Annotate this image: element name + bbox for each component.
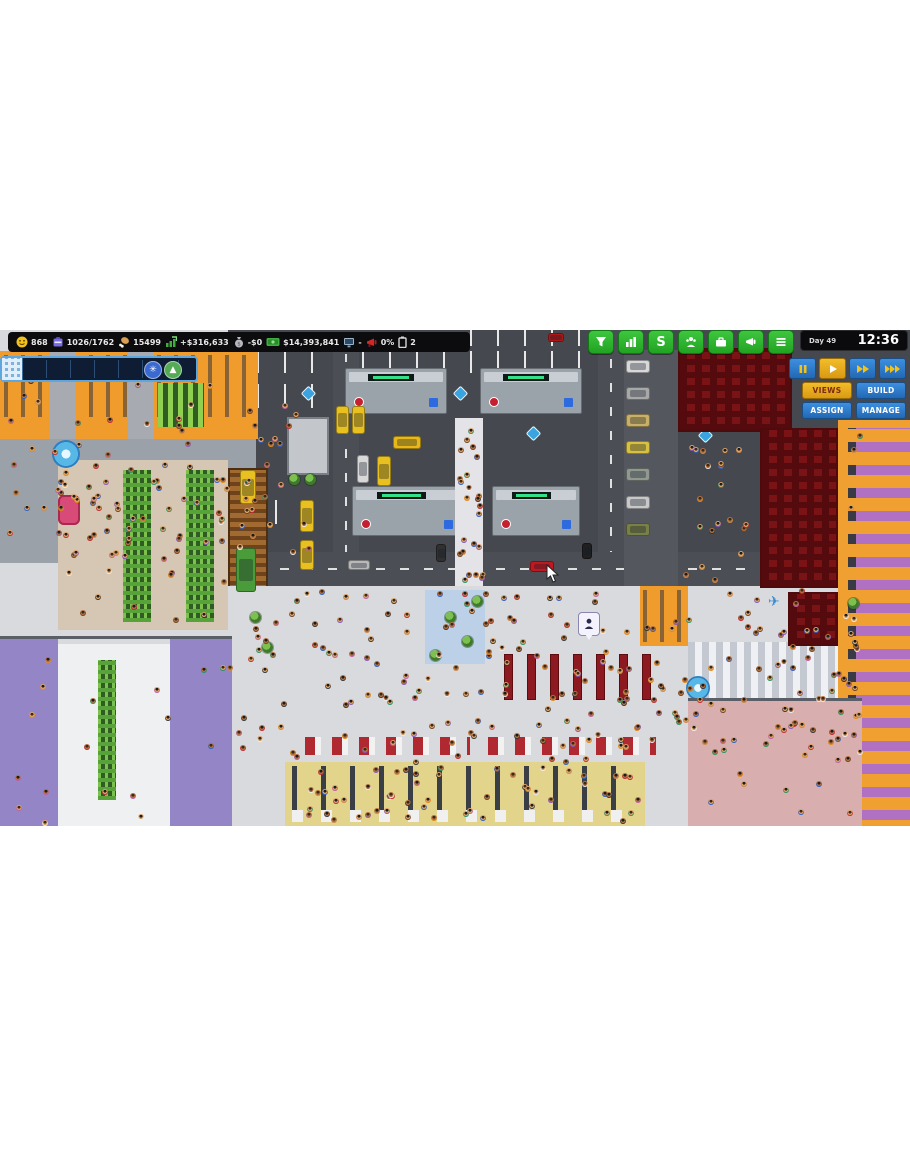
person-dot bbox=[463, 811, 469, 817]
fast-forward-button[interactable] bbox=[849, 358, 876, 379]
person-dot bbox=[624, 629, 630, 635]
person-dot bbox=[693, 711, 699, 717]
megaphone-icon bbox=[745, 336, 757, 348]
person-dot bbox=[130, 793, 136, 799]
person-dot bbox=[763, 741, 769, 747]
person-dot bbox=[842, 731, 848, 737]
finance-button[interactable]: S bbox=[648, 330, 674, 354]
person-dot bbox=[781, 659, 787, 665]
person-dot bbox=[341, 797, 347, 803]
person-dot bbox=[745, 610, 751, 616]
person-dot bbox=[444, 691, 450, 697]
person-dot bbox=[227, 665, 233, 671]
person-dot bbox=[721, 747, 727, 753]
person-dot bbox=[669, 626, 675, 632]
person-dot bbox=[289, 611, 295, 617]
airplane-decal: ✈ bbox=[768, 594, 784, 610]
person-dot bbox=[326, 650, 332, 656]
person-dot bbox=[388, 792, 394, 798]
person-dot bbox=[700, 448, 706, 454]
person-dot bbox=[368, 636, 374, 642]
person-dot bbox=[581, 773, 587, 779]
person-dot bbox=[720, 707, 726, 713]
person-dot bbox=[708, 799, 714, 805]
person-dot bbox=[835, 736, 841, 742]
person-dot bbox=[413, 759, 419, 765]
flight-chip-green[interactable]: ▲ bbox=[164, 361, 182, 379]
person-dot bbox=[534, 653, 540, 659]
views-button[interactable]: VIEWS bbox=[802, 382, 852, 399]
person-dot bbox=[582, 678, 588, 684]
play-icon bbox=[828, 364, 838, 374]
person-dot bbox=[364, 655, 370, 661]
person-dot bbox=[324, 811, 330, 817]
person-dot bbox=[635, 797, 641, 803]
person-dot bbox=[252, 498, 258, 504]
person-dot bbox=[332, 652, 338, 658]
person-dot bbox=[239, 523, 245, 529]
person-dot bbox=[799, 588, 805, 594]
person-dot bbox=[464, 495, 470, 501]
room-shelf bbox=[98, 660, 116, 800]
person-dot bbox=[365, 784, 371, 790]
schedule-segment bbox=[70, 360, 71, 378]
stat-income[interactable]: +$316,633 bbox=[165, 336, 229, 348]
person-dot bbox=[809, 646, 815, 652]
person-dot bbox=[445, 720, 451, 726]
person-dot bbox=[301, 521, 307, 527]
person-dot bbox=[542, 664, 548, 670]
person-dot bbox=[593, 591, 599, 597]
stat-value: - bbox=[358, 338, 361, 347]
person-dot bbox=[582, 781, 588, 787]
wall bbox=[688, 698, 862, 701]
person-dot bbox=[286, 423, 292, 429]
person-dot bbox=[479, 575, 485, 581]
person-dot bbox=[620, 818, 626, 824]
checkin-desks bbox=[305, 737, 470, 755]
person-dot bbox=[75, 420, 81, 426]
person-dot bbox=[613, 773, 619, 779]
person-dot bbox=[720, 738, 726, 744]
person-dot bbox=[745, 624, 751, 630]
person-dot bbox=[768, 733, 774, 739]
person-dot bbox=[160, 526, 166, 532]
person-dot bbox=[575, 671, 581, 677]
stat-passengers[interactable]: 868 bbox=[16, 336, 48, 348]
person-dot bbox=[403, 673, 409, 679]
person-dot bbox=[165, 715, 171, 721]
security-lanes bbox=[292, 766, 640, 810]
person-dot bbox=[306, 546, 312, 552]
person-dot bbox=[702, 739, 708, 745]
person-dot bbox=[458, 447, 464, 453]
person-dot bbox=[93, 463, 99, 469]
person-dot bbox=[385, 611, 391, 617]
income-arrow-icon bbox=[165, 336, 177, 348]
person-dot bbox=[237, 544, 243, 550]
person-dot bbox=[162, 462, 168, 468]
person-dot bbox=[255, 634, 261, 640]
stat-food[interactable]: 15499 bbox=[118, 336, 161, 348]
person-dot bbox=[736, 447, 742, 453]
person-dot bbox=[514, 733, 520, 739]
stat-expenses[interactable]: $ -$0 bbox=[233, 336, 262, 348]
person-dot bbox=[29, 712, 35, 718]
person-dot bbox=[691, 725, 697, 731]
person-dot bbox=[179, 428, 185, 434]
person-dot bbox=[753, 630, 759, 636]
person-dot bbox=[651, 697, 657, 703]
person-dot bbox=[468, 428, 474, 434]
tree bbox=[250, 612, 261, 623]
person-dot bbox=[87, 535, 93, 541]
person-dot bbox=[304, 591, 310, 597]
person-dot bbox=[363, 593, 369, 599]
road-markings bbox=[610, 332, 612, 584]
person-dot bbox=[687, 686, 693, 692]
vehicle bbox=[626, 414, 650, 427]
person-dot bbox=[699, 564, 705, 570]
person-dot bbox=[318, 769, 324, 775]
stat-monitor[interactable]: - bbox=[343, 337, 361, 348]
flight-chip-blue[interactable]: ✳ bbox=[144, 361, 162, 379]
schedule-segment bbox=[94, 360, 95, 378]
person-dot bbox=[176, 416, 182, 422]
person-dot bbox=[851, 616, 857, 622]
person-dot bbox=[312, 621, 318, 627]
stat-value: 868 bbox=[31, 338, 48, 347]
person-dot bbox=[404, 629, 410, 635]
stat-value: +$316,633 bbox=[180, 338, 229, 347]
person-dot bbox=[166, 506, 172, 512]
person-dot bbox=[42, 820, 48, 826]
person-dot bbox=[294, 754, 300, 760]
person-dot bbox=[185, 441, 191, 447]
game-viewport[interactable]: ✈ bbox=[0, 330, 910, 826]
person-dot bbox=[219, 516, 225, 522]
person-dot bbox=[449, 740, 455, 746]
person-dot bbox=[588, 711, 594, 717]
person-dot bbox=[474, 454, 480, 460]
person-dot bbox=[841, 676, 847, 682]
person-dot bbox=[383, 695, 389, 701]
fastest-icon bbox=[884, 364, 902, 374]
person-dot bbox=[635, 724, 641, 730]
person-dot bbox=[333, 798, 339, 804]
person-dot bbox=[176, 423, 182, 429]
person-dot bbox=[486, 649, 492, 655]
stat-bags[interactable]: 1026/1762 bbox=[52, 336, 114, 348]
top-stat-bar: 868 1026/1762 15499 +$316,633 $ -$0 $14,… bbox=[8, 332, 470, 352]
person-dot bbox=[572, 691, 578, 697]
person-dot bbox=[843, 613, 849, 619]
person-dot bbox=[264, 462, 270, 468]
person-dot bbox=[617, 668, 623, 674]
person-dot bbox=[476, 511, 482, 517]
person-dot bbox=[483, 591, 489, 597]
fastest-button[interactable] bbox=[879, 358, 906, 379]
manage-button[interactable]: MANAGE bbox=[856, 402, 906, 419]
assign-button[interactable]: ASSIGN bbox=[802, 402, 852, 419]
person-dot bbox=[343, 702, 349, 708]
person-dot bbox=[458, 479, 464, 485]
stat-battery[interactable]: 2 bbox=[398, 336, 416, 348]
person-dot bbox=[278, 482, 284, 488]
person-dot bbox=[678, 690, 684, 696]
person-dot bbox=[697, 524, 703, 530]
briefcase-icon bbox=[715, 336, 727, 348]
person-dot bbox=[548, 612, 554, 618]
person-dot bbox=[109, 552, 115, 558]
menu-button[interactable] bbox=[768, 330, 794, 354]
day-counter: Day 49 bbox=[809, 337, 836, 345]
person-dot bbox=[461, 537, 467, 543]
person-dot bbox=[437, 591, 443, 597]
person-dot bbox=[600, 659, 606, 665]
person-dot bbox=[689, 445, 695, 451]
person-dot bbox=[219, 538, 225, 544]
person-dot bbox=[278, 724, 284, 730]
person-dot bbox=[21, 393, 27, 399]
person-dot bbox=[829, 688, 835, 694]
expenses-moneybag-icon: $ bbox=[233, 336, 245, 348]
person-dot bbox=[514, 594, 520, 600]
person-dot bbox=[835, 757, 841, 763]
person-dot bbox=[306, 812, 312, 818]
person-dot bbox=[575, 726, 581, 732]
person-dot bbox=[715, 521, 721, 527]
gate-belts bbox=[856, 428, 910, 820]
person-dot bbox=[58, 505, 64, 511]
vehicle bbox=[236, 548, 256, 592]
person-dot bbox=[151, 479, 157, 485]
person-dot bbox=[400, 730, 406, 736]
person-dot bbox=[208, 743, 214, 749]
seating-rows-gray bbox=[688, 642, 838, 700]
person-dot bbox=[384, 808, 390, 814]
stat-value: $14,393,841 bbox=[283, 338, 339, 347]
reports-button[interactable] bbox=[618, 330, 644, 354]
person-dot bbox=[790, 665, 796, 671]
person-dot bbox=[754, 597, 760, 603]
person-dot bbox=[106, 568, 112, 574]
person-dot bbox=[483, 621, 489, 627]
speed-controls bbox=[789, 358, 906, 379]
person-dot bbox=[808, 744, 814, 750]
person-dot bbox=[697, 496, 703, 502]
shuttle-shelter bbox=[492, 486, 580, 536]
person-dot bbox=[626, 666, 632, 672]
person-dot bbox=[248, 656, 254, 662]
room-pink bbox=[688, 700, 862, 826]
person-dot bbox=[90, 698, 96, 704]
person-dot bbox=[66, 570, 72, 576]
person-dot bbox=[244, 508, 250, 514]
person-dot bbox=[510, 772, 516, 778]
person-dot bbox=[708, 701, 714, 707]
staff-people-icon bbox=[685, 336, 697, 348]
person-dot bbox=[331, 817, 337, 823]
red-seating-area bbox=[678, 348, 792, 432]
person-dot bbox=[775, 662, 781, 668]
person-dot bbox=[726, 656, 732, 662]
person-dot bbox=[624, 696, 630, 702]
person-dot bbox=[592, 599, 598, 605]
person-dot bbox=[529, 803, 535, 809]
person-dot bbox=[250, 533, 256, 539]
play-button[interactable] bbox=[819, 358, 846, 379]
vehicle bbox=[626, 523, 650, 536]
person-dot bbox=[781, 629, 787, 635]
person-dot bbox=[566, 768, 572, 774]
person-dot bbox=[436, 652, 442, 658]
person-dot bbox=[201, 612, 207, 618]
person-dot bbox=[168, 572, 174, 578]
red-seating-area bbox=[760, 428, 838, 588]
person-dot bbox=[131, 604, 137, 610]
person-dot bbox=[71, 494, 77, 500]
person-dot bbox=[654, 660, 660, 666]
person-dot bbox=[270, 652, 276, 658]
vehicle bbox=[377, 456, 391, 486]
person-dot bbox=[556, 595, 562, 601]
svg-text:$: $ bbox=[237, 342, 241, 348]
finance-s-icon: S bbox=[656, 335, 665, 350]
vehicle bbox=[548, 333, 564, 342]
person-dot bbox=[128, 467, 134, 473]
marketing-button[interactable] bbox=[738, 330, 764, 354]
person-dot bbox=[550, 695, 556, 701]
person-dot bbox=[564, 622, 570, 628]
screenshot-canvas: { "hud": { "stats": [ {"icon": "passenge… bbox=[0, 0, 910, 1155]
person-dot bbox=[436, 772, 442, 778]
pause-button[interactable] bbox=[789, 358, 816, 379]
person-dot bbox=[829, 729, 835, 735]
stat-value: 15499 bbox=[133, 338, 161, 347]
vehicle bbox=[357, 455, 369, 483]
person-dot bbox=[516, 646, 522, 652]
time-display: 12:36 bbox=[858, 333, 899, 348]
filter-button[interactable] bbox=[588, 330, 614, 354]
person-dot bbox=[797, 690, 803, 696]
person-dot bbox=[504, 660, 510, 666]
person-dot bbox=[783, 787, 789, 793]
person-dot bbox=[656, 710, 662, 716]
person-dot bbox=[618, 743, 624, 749]
main-menu-buttons: VIEWS BUILD ASSIGN MANAGE bbox=[802, 382, 906, 419]
person-dot bbox=[107, 417, 113, 423]
person-dot bbox=[820, 696, 826, 702]
person-dot bbox=[258, 437, 264, 443]
person-dot bbox=[259, 725, 265, 731]
vehicle bbox=[352, 406, 365, 434]
stat-marketing[interactable]: 0% bbox=[366, 337, 395, 348]
person-dot bbox=[617, 697, 623, 703]
person-dot bbox=[224, 486, 230, 492]
person-dot bbox=[548, 797, 554, 803]
person-dot bbox=[798, 809, 804, 815]
person-dot bbox=[595, 732, 601, 738]
person-dot bbox=[712, 577, 718, 583]
person-dot bbox=[425, 676, 431, 682]
person-dot bbox=[414, 780, 420, 786]
person-dot bbox=[252, 423, 258, 429]
person-dot bbox=[308, 787, 314, 793]
person-dot bbox=[293, 412, 299, 418]
person-dot bbox=[561, 635, 567, 641]
person-dot bbox=[520, 639, 526, 645]
person-dot bbox=[181, 496, 187, 502]
person-dot bbox=[813, 627, 819, 633]
person-dot bbox=[390, 740, 396, 746]
person-dot bbox=[35, 399, 41, 405]
person-dot bbox=[95, 594, 101, 600]
person-dot bbox=[560, 743, 566, 749]
vehicle bbox=[300, 540, 314, 570]
cash-bill-icon bbox=[266, 337, 280, 347]
tree bbox=[848, 598, 859, 609]
schedule-grid-icon[interactable] bbox=[2, 358, 23, 380]
person-dot bbox=[547, 595, 553, 601]
person-dot bbox=[464, 472, 470, 478]
battery-icon bbox=[398, 336, 407, 348]
red-bench bbox=[527, 654, 536, 700]
produce-shelf bbox=[123, 470, 151, 622]
person-dot bbox=[337, 617, 343, 623]
person-dot bbox=[490, 638, 496, 644]
person-dot bbox=[463, 691, 469, 697]
stat-cash[interactable]: $14,393,841 bbox=[266, 337, 339, 347]
person-dot bbox=[477, 503, 483, 509]
person-dot bbox=[851, 732, 857, 738]
vehicle bbox=[393, 436, 421, 449]
person-dot bbox=[322, 789, 328, 795]
person-dot bbox=[793, 601, 799, 607]
hamburger-menu-icon bbox=[775, 336, 787, 348]
business-button[interactable] bbox=[708, 330, 734, 354]
person-dot bbox=[540, 765, 546, 771]
person-dot bbox=[246, 478, 252, 484]
build-button[interactable]: BUILD bbox=[856, 382, 906, 399]
person-dot bbox=[478, 689, 484, 695]
person-dot bbox=[718, 461, 724, 467]
stat-value: -$0 bbox=[248, 338, 262, 347]
person-dot bbox=[243, 496, 249, 502]
shop-shelves bbox=[643, 590, 685, 642]
vehicle bbox=[336, 406, 349, 434]
person-dot bbox=[277, 441, 283, 447]
person-dot bbox=[705, 463, 711, 469]
person-dot bbox=[570, 741, 576, 747]
person-dot bbox=[194, 500, 200, 506]
person-dot bbox=[421, 804, 427, 810]
person-dot bbox=[374, 808, 380, 814]
staff-button[interactable] bbox=[678, 330, 704, 354]
person-dot bbox=[816, 781, 822, 787]
schedule-segment bbox=[142, 360, 143, 378]
person-dot bbox=[604, 810, 610, 816]
person-dot bbox=[96, 505, 102, 511]
person-dot bbox=[106, 514, 112, 520]
person-dot bbox=[649, 737, 655, 743]
person-dot bbox=[473, 572, 479, 578]
person-dot bbox=[13, 490, 19, 496]
produce-shelf bbox=[186, 470, 214, 622]
person-icon bbox=[584, 618, 594, 630]
flight-schedule-bar[interactable]: ✳ ▲ bbox=[0, 356, 198, 382]
person-pin-marker[interactable] bbox=[578, 612, 600, 636]
